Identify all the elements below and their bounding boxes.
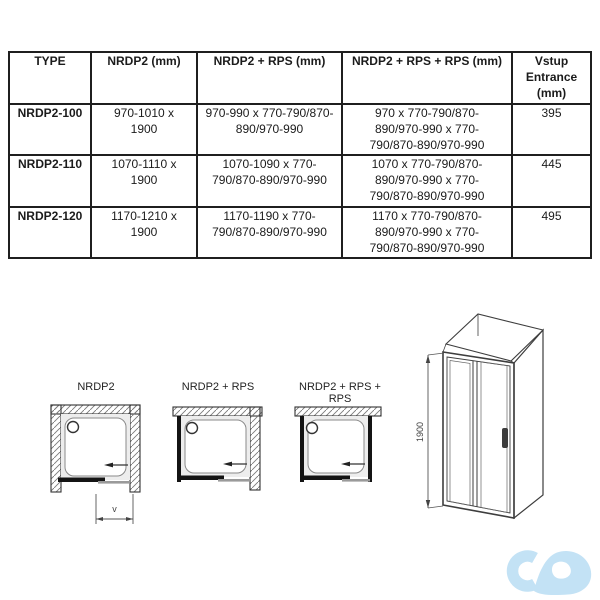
sliding-door xyxy=(58,478,105,483)
entrance-dimension: v xyxy=(96,494,133,524)
cell-nrdp2-rps-rps: 1170 x 770-790/870- 890/970-990 x 770- 7… xyxy=(342,207,512,258)
drain-circle xyxy=(187,423,198,434)
logo-shapes xyxy=(513,551,592,595)
dimension-table: TYPE NRDP2 (mm) NRDP2 + RPS (mm) NRDP2 +… xyxy=(8,51,592,259)
cd-infinity-watermark-icon xyxy=(498,545,600,600)
table-row: NRDP2-120 1170-1210 x 1900 1170-1190 x 7… xyxy=(9,207,591,258)
wall-right xyxy=(130,405,140,492)
cell-nrdp2: 1070-1110 x 1900 xyxy=(91,155,197,206)
height-dim-label: 1900 xyxy=(415,422,425,442)
cell-nrdp2: 1170-1210 x 1900 xyxy=(91,207,197,258)
cell-nrdp2-rps-rps: 970 x 770-790/870- 890/970-990 x 770- 79… xyxy=(342,104,512,155)
fixed-panel xyxy=(218,479,250,482)
cell-nrdp2-rps: 970-990 x 770-790/870- 890/970-990 xyxy=(197,104,342,155)
height-dimension: 1900 xyxy=(415,353,444,508)
cell-nrdp2-rps: 1170-1190 x 770- 790/870-890/970-990 xyxy=(197,207,342,258)
side-panel-rps-left xyxy=(300,416,304,482)
sliding-door xyxy=(179,476,224,481)
table-row: NRDP2-100 970-1010 x 1900 970-990 x 770-… xyxy=(9,104,591,155)
table-row: NRDP2-110 1070-1110 x 1900 1070-1090 x 7… xyxy=(9,155,591,206)
cell-entrance: 395 xyxy=(512,104,591,155)
plan-label-nrdp2-rps: NRDP2 + RPS xyxy=(168,381,268,393)
plan-diagram-nrdp2-rps xyxy=(168,398,268,493)
cell-nrdp2: 970-1010 x 1900 xyxy=(91,104,197,155)
fixed-panel xyxy=(98,481,130,484)
wall-top xyxy=(295,407,381,416)
col-header-entrance: Vstup Entrance (mm) xyxy=(512,52,591,104)
cell-entrance: 495 xyxy=(512,207,591,258)
plan-label-nrdp2: NRDP2 xyxy=(42,381,150,393)
col-header-nrdp2-rps: NRDP2 + RPS (mm) xyxy=(197,52,342,104)
cell-type: NRDP2-110 xyxy=(9,155,91,206)
plan-diagram-nrdp2-rps-rps xyxy=(290,398,390,493)
isometric-door-view: 1900 xyxy=(415,305,595,530)
enclosure-box xyxy=(443,314,543,518)
cell-type: NRDP2-120 xyxy=(9,207,91,258)
door-handle xyxy=(502,428,508,448)
cell-type: NRDP2-100 xyxy=(9,104,91,155)
col-header-nrdp2-rps-rps: NRDP2 + RPS + RPS (mm) xyxy=(342,52,512,104)
cell-entrance: 445 xyxy=(512,155,591,206)
wall-right xyxy=(250,407,260,490)
drain-circle xyxy=(307,423,318,434)
entrance-dim-label: v xyxy=(112,504,117,514)
shower-door-spec-sheet: TYPE NRDP2 (mm) NRDP2 + RPS (mm) NRDP2 +… xyxy=(0,0,600,600)
side-panel-rps-left xyxy=(177,416,181,482)
col-header-type: TYPE xyxy=(9,52,91,104)
cell-nrdp2-rps: 1070-1090 x 770- 790/870-890/970-990 xyxy=(197,155,342,206)
fixed-panel xyxy=(342,479,370,482)
plan-diagram-nrdp2: v xyxy=(42,398,150,530)
cell-nrdp2-rps-rps: 1070 x 770-790/870- 890/970-990 x 770- 7… xyxy=(342,155,512,206)
wall-top xyxy=(51,405,140,414)
drain-circle xyxy=(68,422,79,433)
col-header-nrdp2: NRDP2 (mm) xyxy=(91,52,197,104)
table-header-row: TYPE NRDP2 (mm) NRDP2 + RPS (mm) NRDP2 +… xyxy=(9,52,591,104)
side-panel-rps-right xyxy=(368,416,372,482)
wall-top xyxy=(173,407,262,416)
